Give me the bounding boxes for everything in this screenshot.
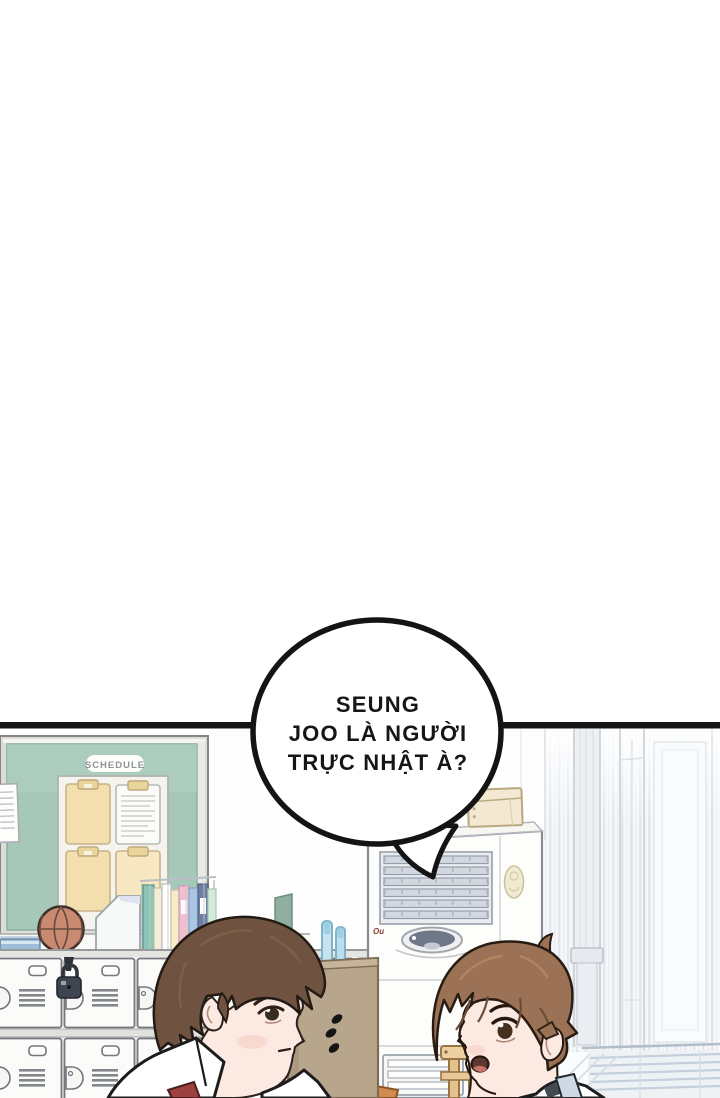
clipboard-bottom-left (66, 847, 110, 911)
speech-line-1: SEUNG (336, 692, 420, 717)
mouth-right-char (472, 1057, 489, 1072)
speech-line-3: TRỰC NHẬT À? (288, 750, 469, 775)
pinned-paper (0, 784, 19, 843)
clipboard-top-left (66, 780, 110, 844)
speech-line-2: JOO LÀ NGƯỜI (289, 721, 468, 746)
schedule-label: SCHEDULE (85, 760, 145, 771)
basketball (39, 907, 84, 952)
comic-page: SCHEDULE (0, 0, 720, 1098)
ac-brand-logo: Ou (373, 927, 384, 936)
clipboard-top-right (116, 781, 160, 844)
radiator (588, 1050, 720, 1098)
locker-door (0, 1039, 62, 1098)
locker-door (0, 959, 62, 1028)
window-pillar (571, 729, 603, 1047)
comic-panel-image: SCHEDULE (0, 0, 720, 1098)
